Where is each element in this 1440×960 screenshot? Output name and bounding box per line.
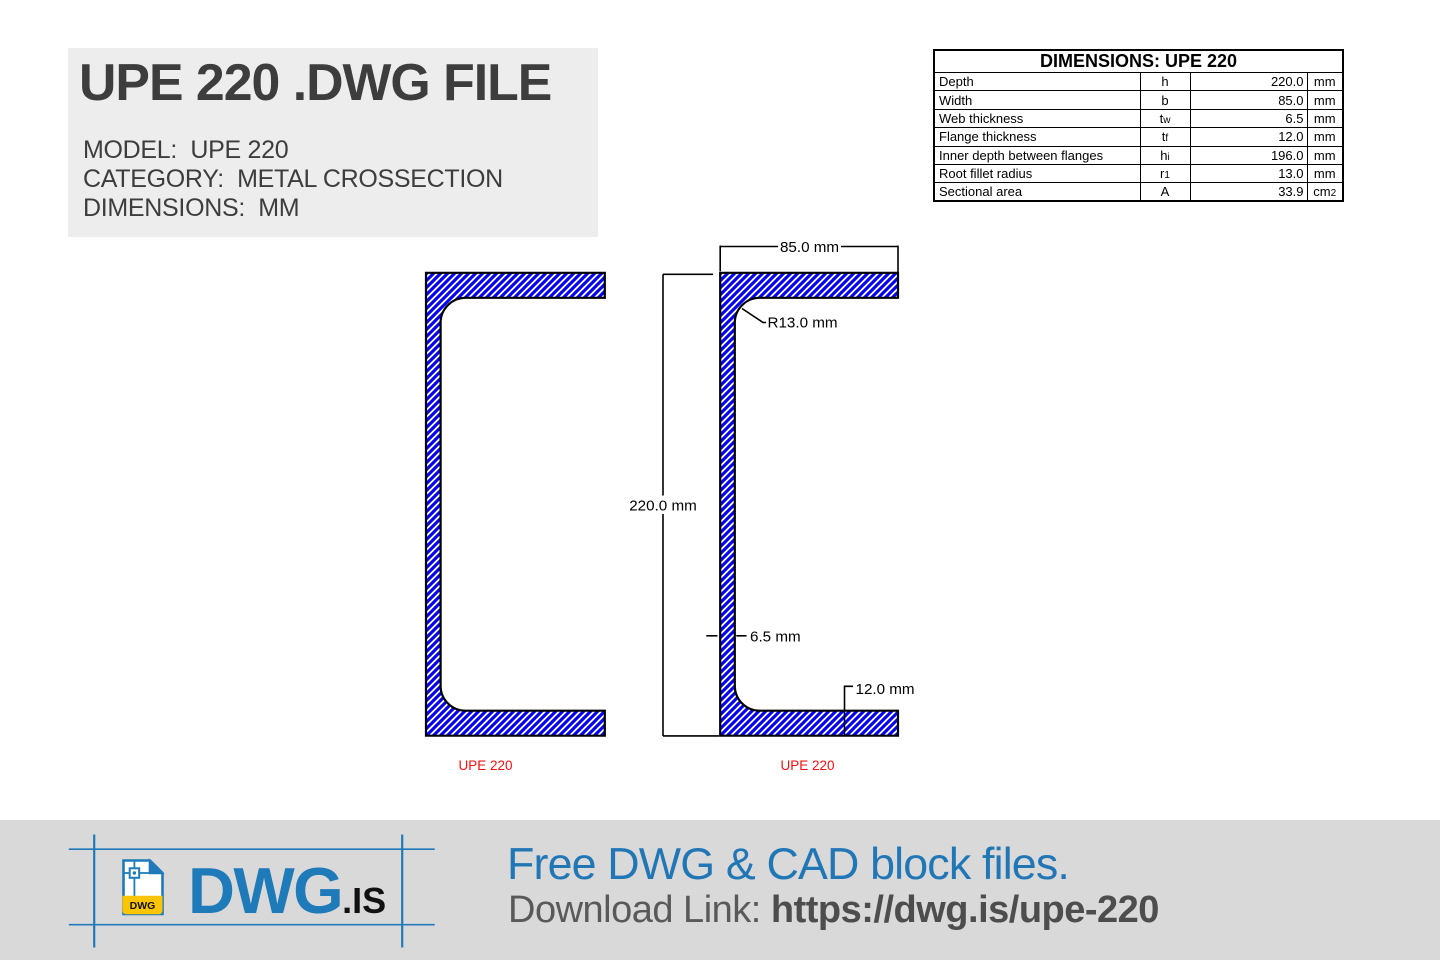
- svg-text:85.0 mm: 85.0 mm: [780, 239, 839, 256]
- svg-text:6.5 mm: 6.5 mm: [750, 629, 801, 646]
- svg-text:DWG: DWG: [130, 900, 156, 912]
- svg-text:R13.0 mm: R13.0 mm: [768, 315, 838, 332]
- svg-text:UPE 220: UPE 220: [780, 758, 834, 773]
- svg-text:12.0 mm: 12.0 mm: [856, 681, 915, 698]
- svg-text:UPE 220: UPE 220: [458, 758, 512, 773]
- svg-text:220.0 mm: 220.0 mm: [629, 498, 697, 515]
